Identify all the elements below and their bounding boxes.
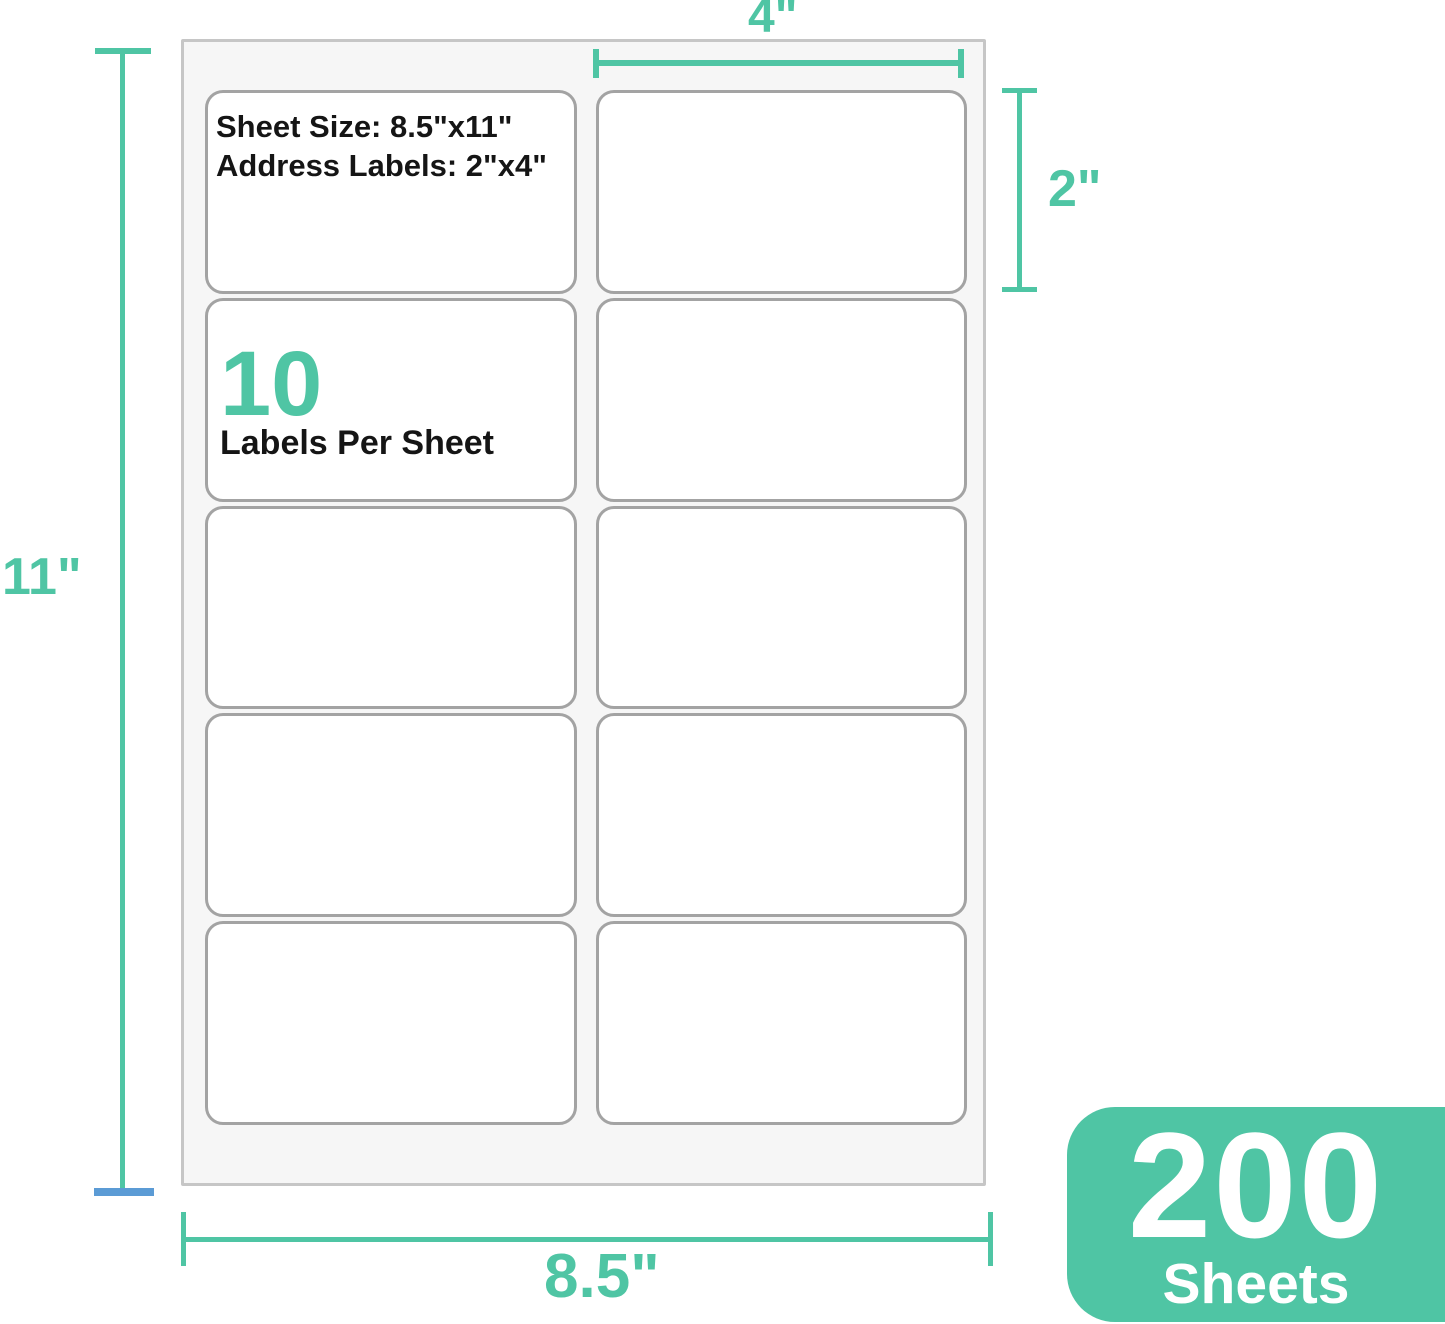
dimension-line-4in [596,60,963,66]
label-cell-blank [596,298,968,502]
label-cell-count: 10 Labels Per Sheet [205,298,577,502]
dimension-cap-8-5in-right [988,1212,993,1266]
label-cell-blank [596,713,968,917]
badge-caption: Sheets [1163,1255,1350,1313]
dimension-label-11in: 11" [2,546,82,608]
dimension-label-4in: 4" [748,0,797,46]
dimension-label-2in: 2" [1048,158,1102,220]
label-cell-info: Sheet Size: 8.5"x11" Address Labels: 2"x… [205,90,577,294]
product-infographic: 11" Sheet Size: 8.5"x11" Address Labels:… [0,0,1445,1324]
sheet-size-text: Sheet Size: 8.5"x11" [216,107,568,146]
dimension-cap-4in-right [958,49,964,78]
labels-count-number: 10 [220,341,574,427]
labels-grid: Sheet Size: 8.5"x11" Address Labels: 2"x… [205,90,967,1125]
labels-per-sheet-block: 10 Labels Per Sheet [208,301,574,463]
dimension-cap-4in-left [593,49,599,78]
label-cell-blank [205,921,577,1125]
dimension-cap-8-5in-left [181,1212,186,1266]
dimension-cap-11in-bottom-blue [94,1188,154,1196]
badge-number: 200 [1128,1109,1384,1261]
sheet-info-text: Sheet Size: 8.5"x11" Address Labels: 2"x… [208,93,574,185]
label-cell-blank [596,506,968,710]
dimension-line-2in [1017,90,1022,290]
label-cell-blank [596,921,968,1125]
address-label-size-text: Address Labels: 2"x4" [216,146,568,185]
dimension-cap-2in-top [1002,88,1037,93]
dimension-line-11in [120,50,125,1192]
dimension-cap-2in-bottom [1002,287,1037,292]
label-sheet: Sheet Size: 8.5"x11" Address Labels: 2"x… [181,39,986,1186]
label-cell-blank [596,90,968,294]
label-cell-blank [205,713,577,917]
dimension-cap-11in-top [95,48,151,54]
labels-count-caption: Labels Per Sheet [220,423,574,463]
dimension-label-8-5in: 8.5" [544,1240,660,1314]
label-cell-blank [205,506,577,710]
sheet-count-badge: 200 Sheets [1067,1107,1445,1322]
